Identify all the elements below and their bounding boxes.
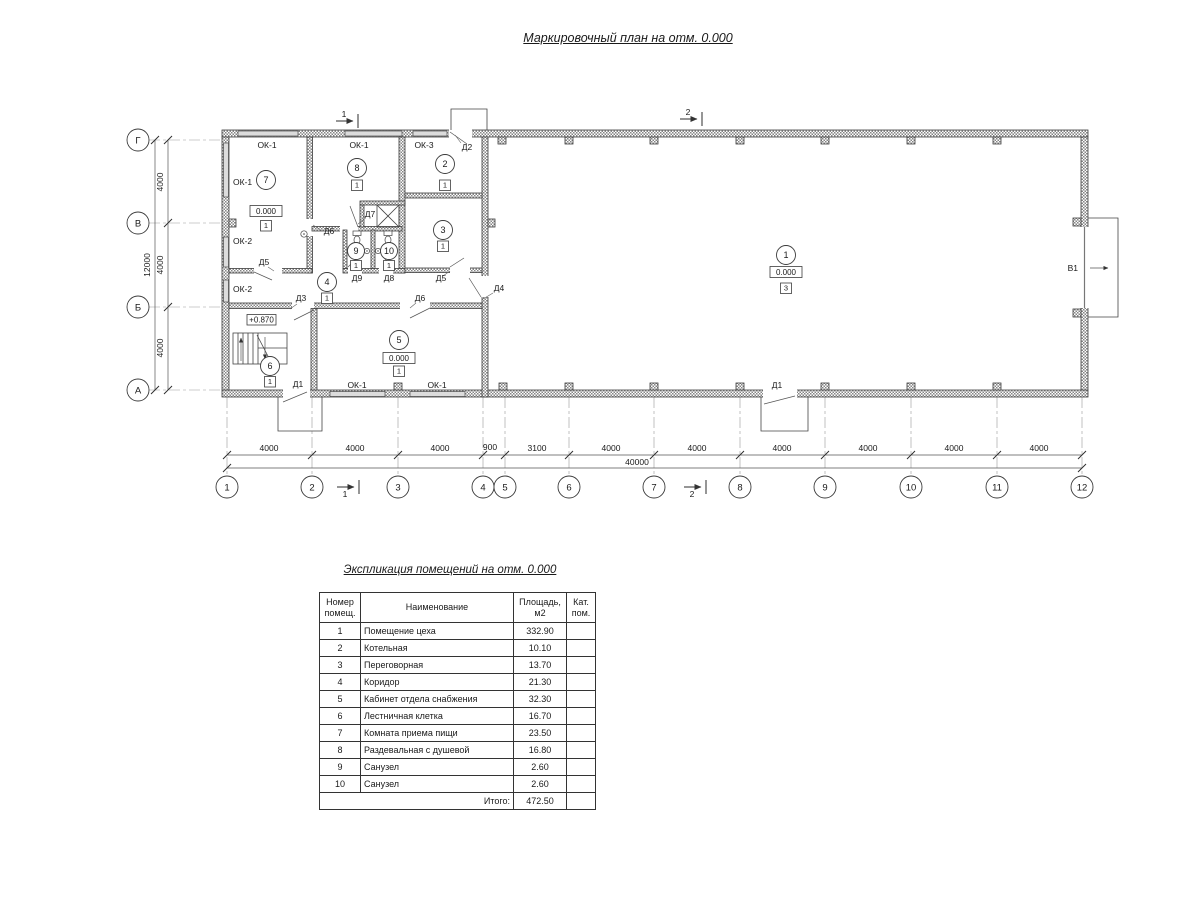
table-row: 5Кабинет отдела снабжения32.30 <box>320 691 596 708</box>
grid-bubble: 9 <box>814 476 836 498</box>
svg-text:1: 1 <box>325 294 329 303</box>
dim-label: 4000 <box>155 172 165 191</box>
porch-left <box>278 397 322 431</box>
table-row: 6Лестничная клетка16.70 <box>320 708 596 725</box>
svg-text:9: 9 <box>353 246 358 256</box>
svg-text:1: 1 <box>343 489 348 499</box>
table-row: 2Котельная10.10 <box>320 640 596 657</box>
svg-text:10: 10 <box>906 483 917 494</box>
svg-text:7: 7 <box>651 483 656 494</box>
grid-bubble: 5 <box>494 476 516 498</box>
door-label: Д5 <box>259 257 270 267</box>
dimension-lines-left: 4000 4000 4000 12000 <box>142 136 172 394</box>
svg-text:6: 6 <box>267 361 272 371</box>
door-label: Д5 <box>436 273 447 283</box>
svg-text:12: 12 <box>1077 483 1088 494</box>
col-header-area: Площадь,м2 <box>514 593 567 623</box>
svg-text:0.000: 0.000 <box>776 268 797 277</box>
svg-text:1: 1 <box>355 181 359 190</box>
room-marker-4: 4 1 <box>318 273 337 304</box>
floor-plan-drawing: 4000 4000 4000 900 3100 4000 4000 4000 4… <box>0 0 1200 545</box>
door-label: Д3 <box>296 293 307 303</box>
door-label: Д8 <box>384 273 395 283</box>
door-label: Д7 <box>365 209 376 219</box>
dim-label: 4000 <box>859 443 878 453</box>
svg-text:3: 3 <box>784 284 788 293</box>
toilet-room10 <box>384 231 392 244</box>
svg-text:4: 4 <box>480 483 485 494</box>
door-label: Д6 <box>415 293 426 303</box>
svg-text:3: 3 <box>395 483 400 494</box>
door-label: Д1 <box>772 380 783 390</box>
dim-total-label: 12000 <box>142 253 152 277</box>
room-marker-3: 3 1 <box>434 221 453 252</box>
dim-label: 4000 <box>346 443 365 453</box>
grid-bubble: 11 <box>986 476 1008 498</box>
table-row: 7Комната приема пищи23.50 <box>320 725 596 742</box>
dim-label: 4000 <box>1030 443 1049 453</box>
svg-text:1: 1 <box>443 181 447 190</box>
col-header-category: Кат.пом. <box>567 593 596 623</box>
gate-label: В1 <box>1068 263 1079 273</box>
room-marker-7: 7 0.000 1 <box>250 171 282 232</box>
stair-elevation-label: +0.870 <box>249 316 274 325</box>
entry-vestibule-top <box>451 109 487 130</box>
svg-text:Г: Г <box>135 136 140 147</box>
col-header-name: Наименование <box>361 593 514 623</box>
svg-text:6: 6 <box>566 483 571 494</box>
grid-bubble: 2 <box>301 476 323 498</box>
room-markers: 1 0.000 3 2 1 3 1 4 1 <box>250 155 802 388</box>
svg-text:9: 9 <box>822 483 827 494</box>
dim-label: 4000 <box>155 255 165 274</box>
door-label: Д2 <box>462 142 473 152</box>
room-marker-10: 10 1 <box>381 243 398 271</box>
grid-bubble: 3 <box>387 476 409 498</box>
svg-text:0.000: 0.000 <box>256 207 277 216</box>
dim-label: 4000 <box>688 443 707 453</box>
table-total-row: Итого: 472.50 <box>320 793 596 810</box>
window-label: ОК-1 <box>427 380 446 390</box>
room-marker-5: 5 0.000 1 <box>383 331 415 377</box>
window-label: ОК-3 <box>414 140 433 150</box>
window-label: ОК-2 <box>233 236 252 246</box>
grid-column-lines <box>227 397 1082 476</box>
drawing-sheet: Маркировочный план на отм. 0.000 <box>0 0 1200 900</box>
grid-bubble: 8 <box>729 476 751 498</box>
svg-text:1: 1 <box>387 261 391 270</box>
svg-text:1: 1 <box>783 250 788 260</box>
door-label: Д9 <box>352 273 363 283</box>
staircase: +0.870 <box>233 315 287 365</box>
window-label: ОК-2 <box>233 284 252 294</box>
door-swings <box>254 132 795 404</box>
svg-text:А: А <box>135 386 142 397</box>
section-mark-1-bottom: 1 <box>337 480 359 499</box>
svg-text:5: 5 <box>396 335 401 345</box>
room-marker-1: 1 0.000 3 <box>770 246 802 294</box>
grid-bubble: 4 <box>472 476 494 498</box>
total-area: 472.50 <box>514 793 567 810</box>
grid-bubble: 7 <box>643 476 665 498</box>
svg-text:1: 1 <box>268 377 272 386</box>
dim-total-label: 40000 <box>625 457 649 467</box>
vent-shaft <box>377 205 399 227</box>
grid-bubble: 12 <box>1071 476 1093 498</box>
svg-text:1: 1 <box>354 261 358 270</box>
svg-text:1: 1 <box>342 109 347 119</box>
dimension-ticks <box>223 451 1086 472</box>
section-mark-2-top: 2 <box>680 107 702 126</box>
svg-text:В: В <box>135 219 141 230</box>
dim-label: 4000 <box>945 443 964 453</box>
dim-label: 4000 <box>773 443 792 453</box>
svg-text:3: 3 <box>440 225 445 235</box>
dim-label: 4000 <box>602 443 621 453</box>
door-label: Д4 <box>494 283 505 293</box>
dim-label: 4000 <box>431 443 450 453</box>
col-header-number: Номерпомещ. <box>320 593 361 623</box>
window-label: ОК-1 <box>349 140 368 150</box>
svg-text:11: 11 <box>992 483 1002 494</box>
dim-label: 4000 <box>260 443 279 453</box>
svg-text:0.000: 0.000 <box>389 354 410 363</box>
section-mark-1-top: 1 <box>336 109 358 128</box>
svg-text:2: 2 <box>690 489 695 499</box>
svg-text:7: 7 <box>263 175 268 185</box>
grid-bubble: 10 <box>900 476 922 498</box>
grid-bubble: 1 <box>216 476 238 498</box>
svg-text:4: 4 <box>324 277 329 287</box>
door-opening-d6b <box>400 302 430 310</box>
door-label: Д1 <box>293 379 304 389</box>
svg-text:1: 1 <box>224 483 229 494</box>
window-label: ОК-1 <box>347 380 366 390</box>
room-marker-2: 2 1 <box>436 155 455 191</box>
svg-text:Б: Б <box>135 303 141 314</box>
svg-text:2: 2 <box>309 483 314 494</box>
svg-text:2: 2 <box>442 159 447 169</box>
door-opening-d5a <box>254 268 282 275</box>
table-row: 1Помещение цеха332.90 <box>320 623 596 640</box>
svg-text:1: 1 <box>397 367 401 376</box>
room-schedule-table: Номерпомещ. Наименование Площадь,м2 Кат.… <box>319 592 596 810</box>
door-labels: Д1 Д1 Д2 Д3 Д4 Д5 Д5 Д6 Д6 Д7 Д8 Д9 <box>259 142 783 390</box>
dim-label: 3100 <box>528 443 547 453</box>
grid-bubble: Г <box>127 129 149 151</box>
room-marker-9: 9 1 <box>348 243 365 271</box>
table-row: 8Раздевальная с душевой16.80 <box>320 742 596 759</box>
svg-text:1: 1 <box>264 221 268 230</box>
svg-text:1: 1 <box>441 242 445 251</box>
window-label: ОК-1 <box>233 177 252 187</box>
table-row: 3Переговорная13.70 <box>320 657 596 674</box>
section-mark-2-bottom: 2 <box>684 480 706 499</box>
table-header-row: Номерпомещ. Наименование Площадь,м2 Кат.… <box>320 593 596 623</box>
gate-dock-right <box>1088 218 1118 317</box>
dim-label: 4000 <box>155 338 165 357</box>
table-row: 4Коридор21.30 <box>320 674 596 691</box>
svg-text:10: 10 <box>384 246 394 256</box>
table-row: 10Санузел2.60 <box>320 776 596 793</box>
room-marker-8: 8 1 <box>348 159 367 191</box>
table-row: 9Санузел2.60 <box>320 759 596 776</box>
grid-bubble: В <box>127 212 149 234</box>
svg-text:5: 5 <box>502 483 507 494</box>
room-marker-6: 6 1 <box>261 357 280 388</box>
window-label: ОК-1 <box>257 140 276 150</box>
grid-bubble: Б <box>127 296 149 318</box>
toilet-room9 <box>353 231 361 244</box>
door-opening-d5b <box>450 267 470 274</box>
door-label: Д6 <box>324 226 335 236</box>
svg-text:2: 2 <box>686 107 691 117</box>
dim-label: 900 <box>483 442 497 452</box>
schedule-title: Экспликация помещений на отм. 0.000 <box>330 564 570 576</box>
door-opening-d4 <box>481 276 489 297</box>
svg-text:8: 8 <box>354 163 359 173</box>
grid-bubble: А <box>127 379 149 401</box>
svg-text:8: 8 <box>737 483 742 494</box>
total-label: Итого: <box>320 793 514 810</box>
grid-bubble: 6 <box>558 476 580 498</box>
porch-hall <box>761 397 808 431</box>
dimension-lines-bottom: 4000 4000 4000 900 3100 4000 4000 4000 4… <box>223 442 1086 472</box>
